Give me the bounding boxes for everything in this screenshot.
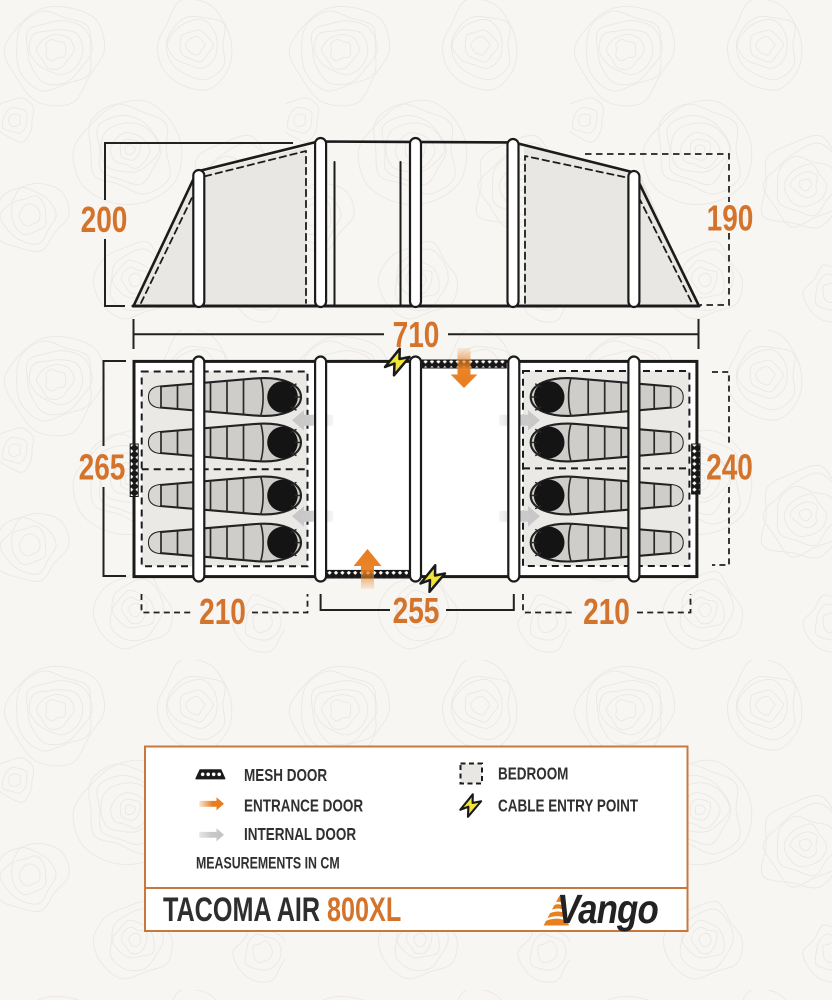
svg-text:255: 255 <box>393 591 440 631</box>
svg-text:BEDROOM: BEDROOM <box>498 765 568 784</box>
svg-text:MEASUREMENTS IN CM: MEASUREMENTS IN CM <box>196 855 340 873</box>
svg-text:210: 210 <box>583 592 630 632</box>
svg-text:200: 200 <box>81 200 128 240</box>
svg-text:240: 240 <box>706 447 753 487</box>
svg-text:TACOMA AIR 800XL: TACOMA AIR 800XL <box>163 891 401 929</box>
svg-text:ENTRANCE DOOR: ENTRANCE DOOR <box>244 797 364 816</box>
svg-text:265: 265 <box>79 447 126 487</box>
svg-text:MESH DOOR: MESH DOOR <box>244 766 328 785</box>
svg-text:CABLE ENTRY POINT: CABLE ENTRY POINT <box>498 797 638 816</box>
svg-text:INTERNAL DOOR: INTERNAL DOOR <box>244 825 357 844</box>
svg-text:Vango: Vango <box>557 887 658 932</box>
svg-text:210: 210 <box>199 592 246 632</box>
svg-text:190: 190 <box>707 198 754 238</box>
